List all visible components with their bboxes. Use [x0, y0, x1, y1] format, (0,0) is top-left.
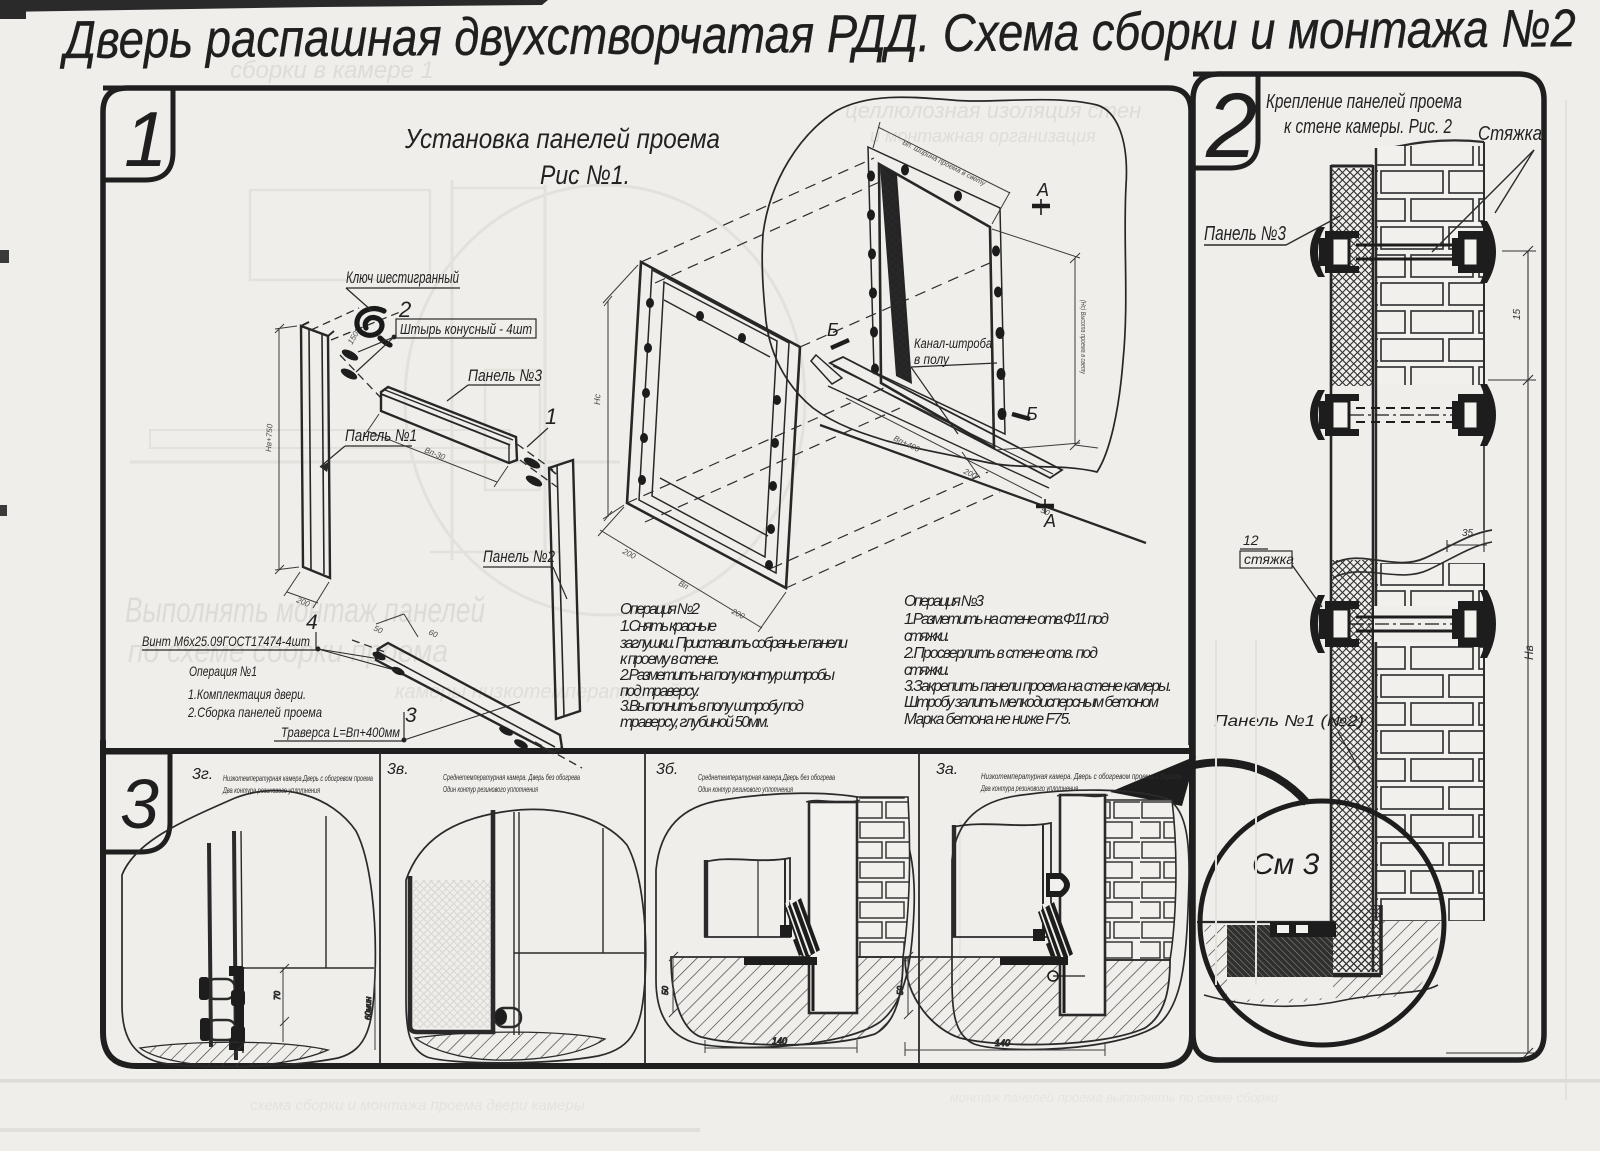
svg-text:Операция №2: Операция №2	[620, 601, 700, 618]
svg-text:60мин: 60мин	[364, 996, 373, 1020]
svg-text:4: 4	[306, 611, 318, 634]
svg-text:Один контур резинового уплотне: Один контур резинового уплотнения	[443, 784, 538, 794]
svg-text:Низкотемпературная камера.Двер: Низкотемпературная камера.Дверь с обогре…	[223, 773, 373, 783]
svg-text:3.Закрепить панели проема на с: 3.Закрепить панели проема на стене камер…	[904, 678, 1172, 695]
svg-text:Операция №1: Операция №1	[189, 663, 257, 679]
svg-text:Установка панелей проема: Установка панелей проема	[404, 123, 720, 154]
svg-text:заглушки. Приставить собраные: заглушки. Приставить собраные панели	[619, 635, 848, 652]
svg-text:Штырь конусный - 4шт: Штырь конусный - 4шт	[400, 322, 532, 338]
svg-text:Б: Б	[827, 320, 839, 340]
svg-text:140: 140	[772, 1036, 787, 1046]
svg-text:Панель №1: Панель №1	[345, 426, 417, 445]
svg-text:3.Выполнить в полу штробу под: 3.Выполнить в полу штробу под	[620, 698, 804, 715]
svg-text:схема сборки и монтажа проема: схема сборки и монтажа проема двери каме…	[250, 1097, 585, 1114]
svg-text:(Нс) Высота проема в свету: (Нс) Высота проема в свету	[1079, 300, 1086, 374]
svg-text:Штробу залить мелкодисперсным: Штробу залить мелкодисперсным бетоном	[904, 694, 1159, 711]
svg-text:стяжки.: стяжки.	[904, 628, 950, 645]
svg-text:Операция №3: Операция №3	[904, 593, 984, 610]
svg-text:35: 35	[1462, 528, 1474, 539]
svg-text:1.Разметить на стене отв.Ф11 п: 1.Разметить на стене отв.Ф11 под	[904, 611, 1109, 628]
svg-text:к проему в стене.: к проему в стене.	[620, 651, 720, 668]
svg-text:Панель №3: Панель №3	[1204, 223, 1286, 245]
svg-text:Крепление панелей проема: Крепление панелей проема	[1266, 91, 1462, 113]
svg-text:стяжка: стяжка	[1244, 551, 1294, 567]
svg-text:Низкотемпературная камера. Две: Низкотемпературная камера. Дверь с обогр…	[981, 771, 1181, 781]
svg-text:2.Сборка панелей проема: 2.Сборка панелей проема	[187, 704, 322, 720]
svg-text:3: 3	[120, 765, 159, 843]
svg-text:50: 50	[896, 986, 905, 995]
svg-text:Рис №1.: Рис №1.	[540, 160, 630, 190]
svg-text:70: 70	[273, 991, 282, 1000]
svg-text:Панель №1 (№2): Панель №1 (№2)	[1214, 713, 1364, 730]
svg-text:50: 50	[661, 986, 670, 995]
svg-text:к стене камеры. Рис. 2: к стене камеры. Рис. 2	[1284, 116, 1452, 138]
svg-text:Винт М6х25.09ГОСТ17474-4шт: Винт М6х25.09ГОСТ17474-4шт	[142, 633, 310, 649]
svg-text:3б.: 3б.	[656, 761, 678, 778]
svg-text:Панель №2: Панель №2	[483, 547, 555, 566]
svg-text:Среднетемпературная камера.Две: Среднетемпературная камера.Дверь без обо…	[698, 772, 835, 782]
svg-text:Панель №3: Панель №3	[468, 366, 542, 385]
svg-text:3а.: 3а.	[936, 761, 958, 778]
svg-text:Стяжка: Стяжка	[1478, 123, 1542, 145]
svg-text:1.Комплектация двери.: 1.Комплектация двери.	[188, 686, 306, 702]
svg-text:Канал-штроба: Канал-штроба	[914, 336, 992, 351]
svg-text:2.Разметить на полу контур штр: 2.Разметить на полу контур штробы	[619, 667, 836, 684]
svg-text:Ключ шестигранный: Ключ шестигранный	[346, 268, 459, 287]
svg-text:3г.: 3г.	[192, 766, 213, 783]
svg-text:Среднетемпературная камера. Дв: Среднетемпературная камера. Дверь без об…	[443, 772, 580, 782]
svg-text:Траверса L=Вп+400мм: Траверса L=Вп+400мм	[281, 725, 400, 740]
svg-text:1.Снять красные: 1.Снять красные	[620, 618, 717, 635]
svg-text:Нв: Нв	[1522, 645, 1536, 660]
svg-text:Б: Б	[1026, 404, 1038, 424]
svg-text:траверсу, глубиной 50мм.: траверсу, глубиной 50мм.	[620, 714, 770, 731]
svg-text:1: 1	[124, 95, 167, 183]
svg-text:стяжки.: стяжки.	[904, 662, 950, 679]
svg-text:2.Просверлить в стене отв. п: 2.Просверлить в стене отв. под	[903, 645, 1098, 662]
svg-text:в полу: в полу	[914, 352, 950, 367]
svg-text:3в.: 3в.	[387, 761, 409, 778]
svg-text:140: 140	[995, 1038, 1010, 1048]
svg-text:Выполнять монтаж панелей: Выполнять монтаж панелей	[125, 591, 485, 630]
svg-text:Один контур резинового уплотне: Один контур резинового уплотнения	[698, 784, 793, 794]
svg-text:Нв+750: Нв+750	[264, 423, 274, 452]
svg-text:А: А	[1036, 180, 1049, 200]
svg-text:12: 12	[1243, 532, 1259, 548]
svg-text:См 3: См 3	[1252, 848, 1320, 881]
svg-text:2: 2	[1205, 75, 1257, 177]
svg-text:целлюлозная изоляция стен: целлюлозная изоляция стен	[845, 98, 1141, 123]
svg-text:15: 15	[1512, 308, 1523, 320]
svg-text:2: 2	[398, 297, 411, 322]
svg-text:Марка бетона не ниже F75.: Марка бетона не ниже F75.	[904, 711, 1072, 728]
svg-text:монтаж панелей проема выполнят: монтаж панелей проема выполнять по схеме…	[950, 1090, 1278, 1105]
svg-text:3: 3	[405, 704, 417, 727]
svg-text:Дверь распашная двухстворчатая: Дверь распашная двухстворчатая РДД. Схем…	[59, 0, 1576, 70]
svg-text:Нс: Нс	[592, 393, 602, 405]
svg-text:1: 1	[545, 404, 557, 429]
